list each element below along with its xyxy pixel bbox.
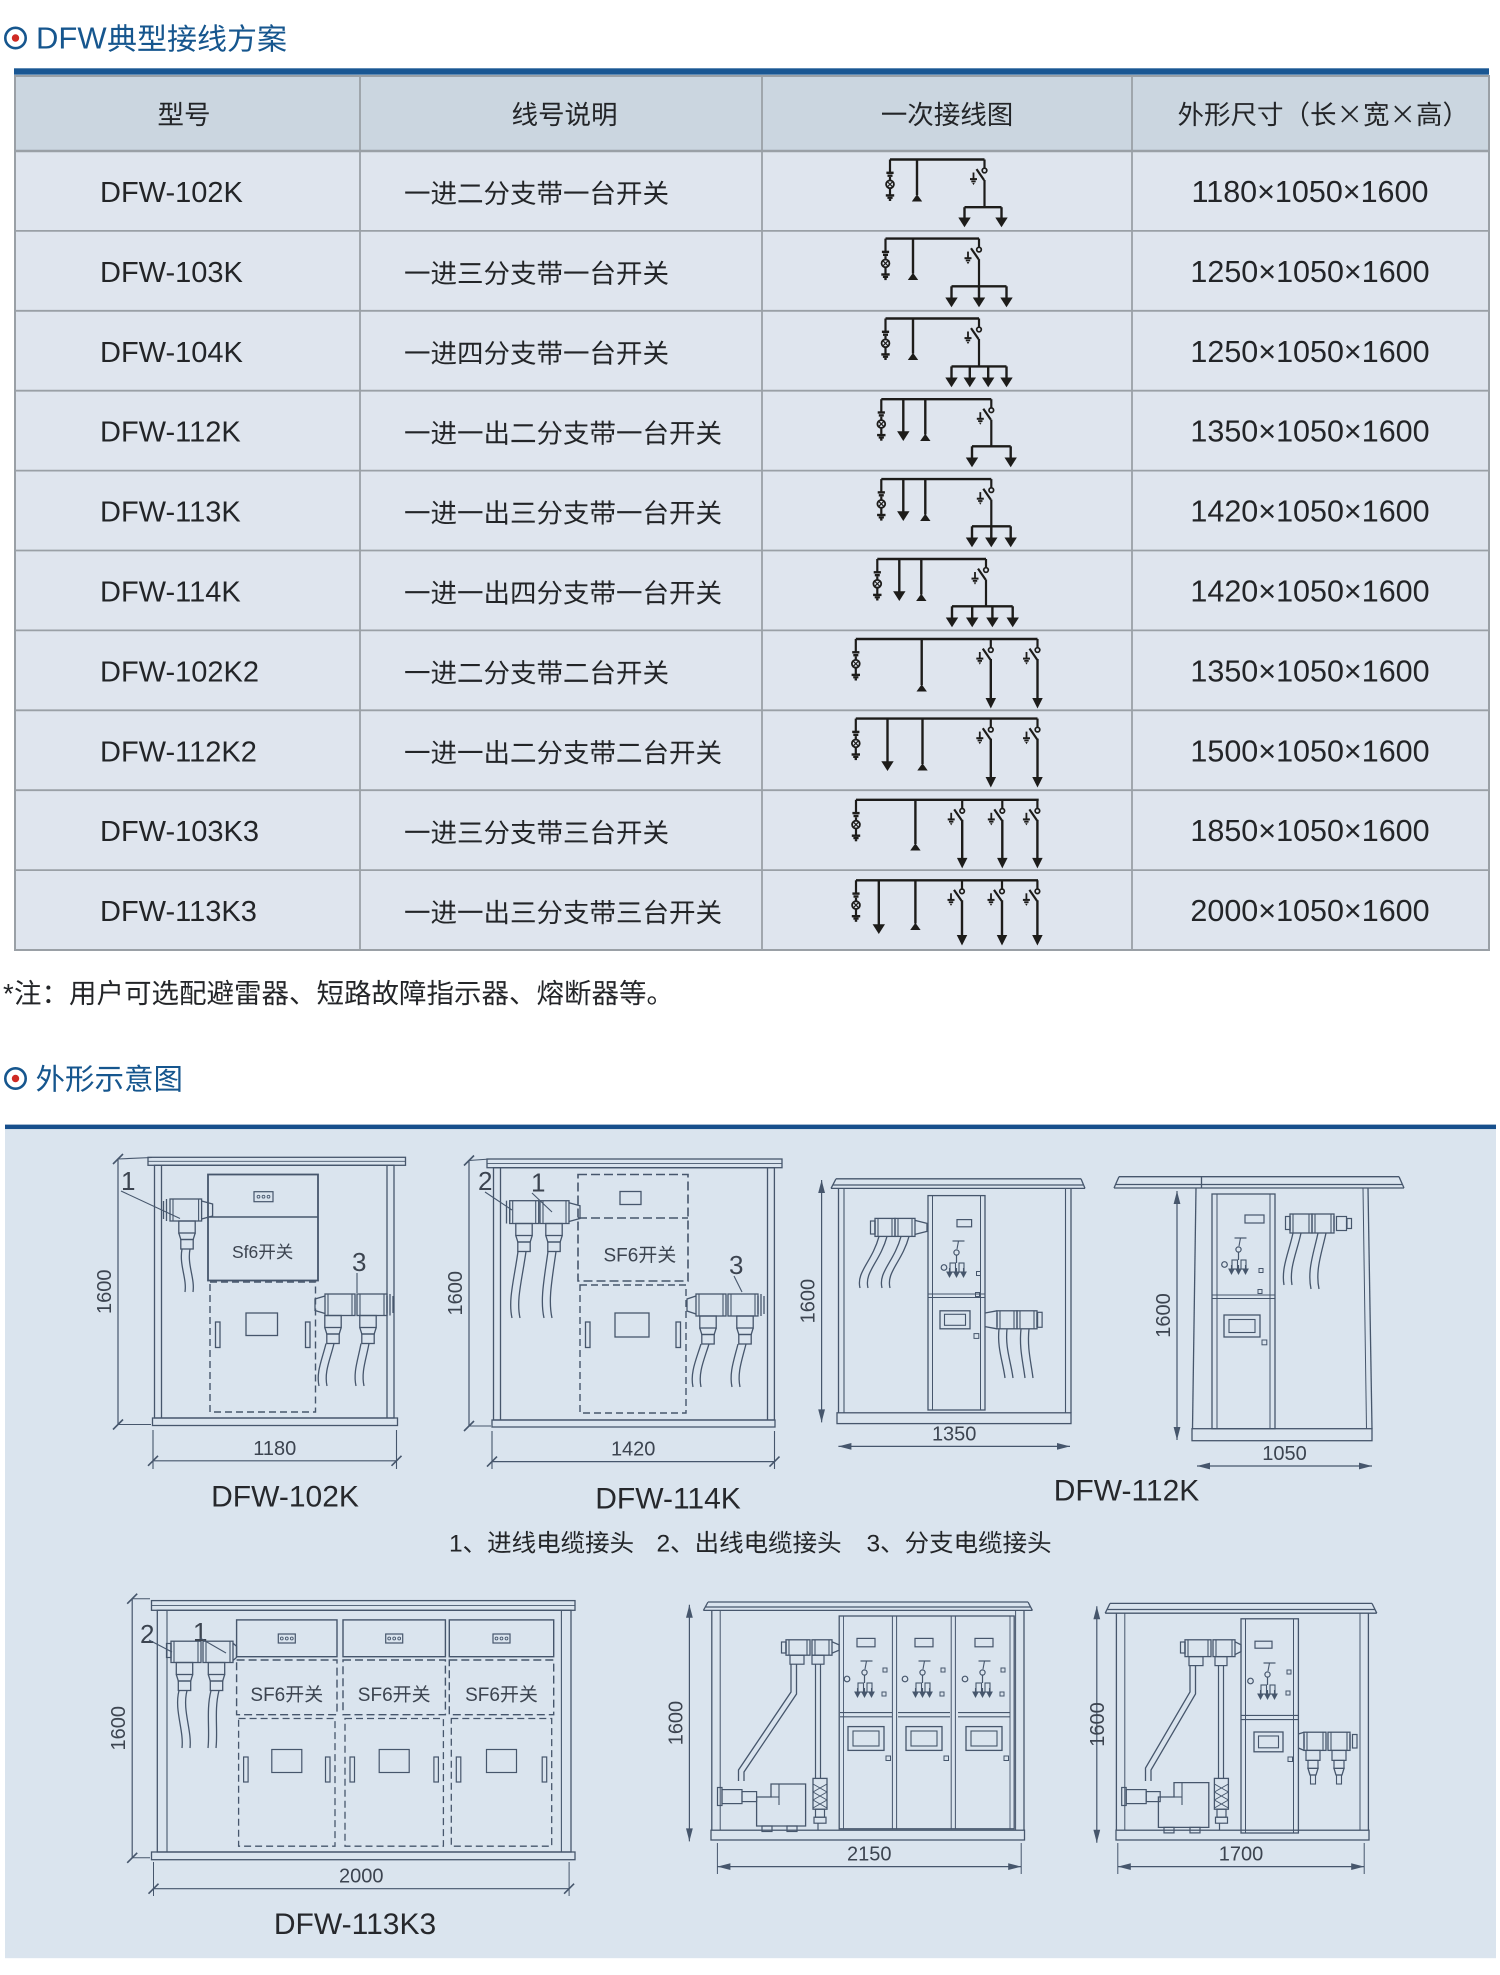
svg-text:1180: 1180: [253, 1438, 296, 1460]
svg-text:1180×1050×1600: 1180×1050×1600: [1192, 175, 1429, 209]
svg-text:SF6: SF6: [250, 1685, 285, 1706]
svg-text:1600: 1600: [94, 1270, 116, 1315]
svg-text:DFW-104K: DFW-104K: [100, 337, 244, 369]
svg-text:1350: 1350: [932, 1423, 977, 1445]
svg-text:DFW-102K: DFW-102K: [211, 1481, 359, 1514]
svg-text:DFW-102K: DFW-102K: [100, 177, 244, 209]
svg-text:2150: 2150: [847, 1844, 892, 1866]
svg-text:1420: 1420: [611, 1439, 656, 1461]
svg-text:DFW-112K: DFW-112K: [100, 417, 241, 449]
svg-text:DFW-113K3: DFW-113K3: [100, 896, 257, 928]
svg-text:DFW-114K: DFW-114K: [595, 1483, 741, 1516]
svg-text:1250×1050×1600: 1250×1050×1600: [1190, 335, 1429, 369]
svg-text:3: 3: [867, 1531, 881, 1558]
svg-text:DFW-113K3: DFW-113K3: [274, 1908, 436, 1941]
svg-text:SF6: SF6: [465, 1685, 500, 1706]
svg-text:DFW-102K2: DFW-102K2: [100, 656, 259, 688]
svg-text:1600: 1600: [445, 1271, 467, 1316]
svg-text:1250×1050×1600: 1250×1050×1600: [1190, 255, 1429, 289]
svg-text:2: 2: [657, 1531, 671, 1558]
svg-text:SF6: SF6: [604, 1246, 639, 1267]
svg-text:1700: 1700: [1219, 1844, 1264, 1866]
svg-text:1600: 1600: [798, 1279, 820, 1324]
svg-text:3: 3: [352, 1247, 366, 1277]
svg-text:1: 1: [449, 1531, 463, 1558]
svg-text:1850×1050×1600: 1850×1050×1600: [1190, 814, 1429, 848]
svg-text:1050: 1050: [1262, 1443, 1307, 1465]
svg-text:2000×1050×1600: 2000×1050×1600: [1190, 894, 1429, 928]
svg-text:DFW-112K: DFW-112K: [1054, 1475, 1200, 1508]
svg-text:1: 1: [193, 1617, 207, 1647]
svg-text:1500×1050×1600: 1500×1050×1600: [1190, 734, 1429, 768]
svg-text:2: 2: [478, 1166, 492, 1196]
svg-text:DFW-112K2: DFW-112K2: [100, 736, 257, 768]
svg-text:DFW-103K: DFW-103K: [100, 257, 244, 289]
svg-text:DFW-114K: DFW-114K: [100, 577, 241, 609]
svg-text:1420×1050×1600: 1420×1050×1600: [1190, 575, 1429, 609]
svg-text:*: *: [3, 978, 14, 1009]
svg-text:1: 1: [531, 1168, 545, 1198]
svg-text:2000: 2000: [339, 1866, 384, 1888]
svg-text:3: 3: [729, 1250, 743, 1280]
svg-text:DFW-113K: DFW-113K: [100, 497, 241, 529]
svg-text:2: 2: [140, 1619, 154, 1649]
svg-text:DFW-103K3: DFW-103K3: [100, 816, 259, 848]
svg-text:1420×1050×1600: 1420×1050×1600: [1190, 495, 1429, 529]
svg-text:1350×1050×1600: 1350×1050×1600: [1190, 415, 1429, 449]
svg-text:1600: 1600: [108, 1706, 130, 1751]
svg-text:Sf6: Sf6: [232, 1242, 258, 1262]
svg-text:1350×1050×1600: 1350×1050×1600: [1190, 654, 1429, 688]
svg-text:1600: 1600: [665, 1701, 687, 1746]
svg-text:1600: 1600: [1153, 1293, 1175, 1338]
svg-text:DFW: DFW: [36, 21, 107, 56]
svg-text:SF6: SF6: [358, 1685, 393, 1706]
svg-text:1600: 1600: [1087, 1702, 1109, 1747]
